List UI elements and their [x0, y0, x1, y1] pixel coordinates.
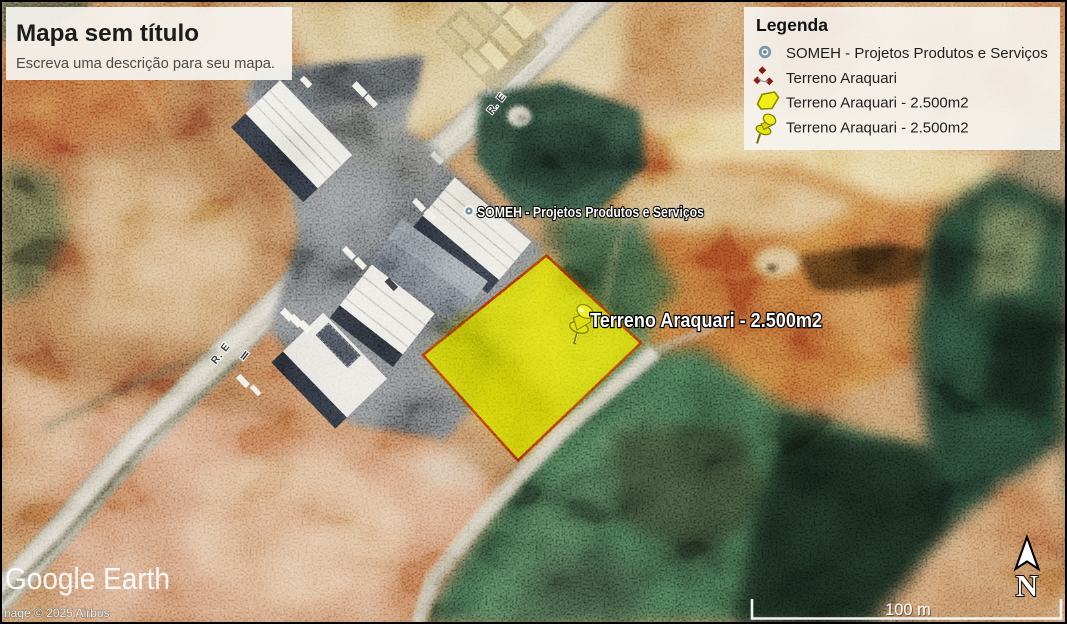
- svg-text:Terreno Araquari - 2.500m2: Terreno Araquari - 2.500m2: [786, 95, 969, 112]
- svg-text:Mapa sem título: Mapa sem título: [16, 20, 199, 47]
- svg-text:100 m: 100 m: [885, 601, 931, 619]
- svg-text:Legenda: Legenda: [756, 15, 828, 35]
- svg-text:Terreno Araquari: Terreno Araquari: [786, 70, 897, 87]
- svg-text:SOMEH - Projetos Produtos e Se: SOMEH - Projetos Produtos e Serviços: [477, 204, 704, 221]
- svg-text:Terreno Araquari - 2.500m2: Terreno Araquari - 2.500m2: [786, 120, 969, 137]
- svg-text:SOMEH - Projetos Produtos e Se: SOMEH - Projetos Produtos e Serviços: [786, 45, 1048, 62]
- svg-text:Escreva uma descrição para seu: Escreva uma descrição para seu mapa.: [16, 55, 275, 72]
- svg-text:Google Earth: Google Earth: [5, 561, 170, 596]
- svg-text:Terreno Araquari - 2.500m2: Terreno Araquari - 2.500m2: [590, 310, 822, 332]
- svg-text:image © 2025 Airbus: image © 2025 Airbus: [2, 606, 110, 620]
- svg-text:N: N: [1016, 568, 1038, 603]
